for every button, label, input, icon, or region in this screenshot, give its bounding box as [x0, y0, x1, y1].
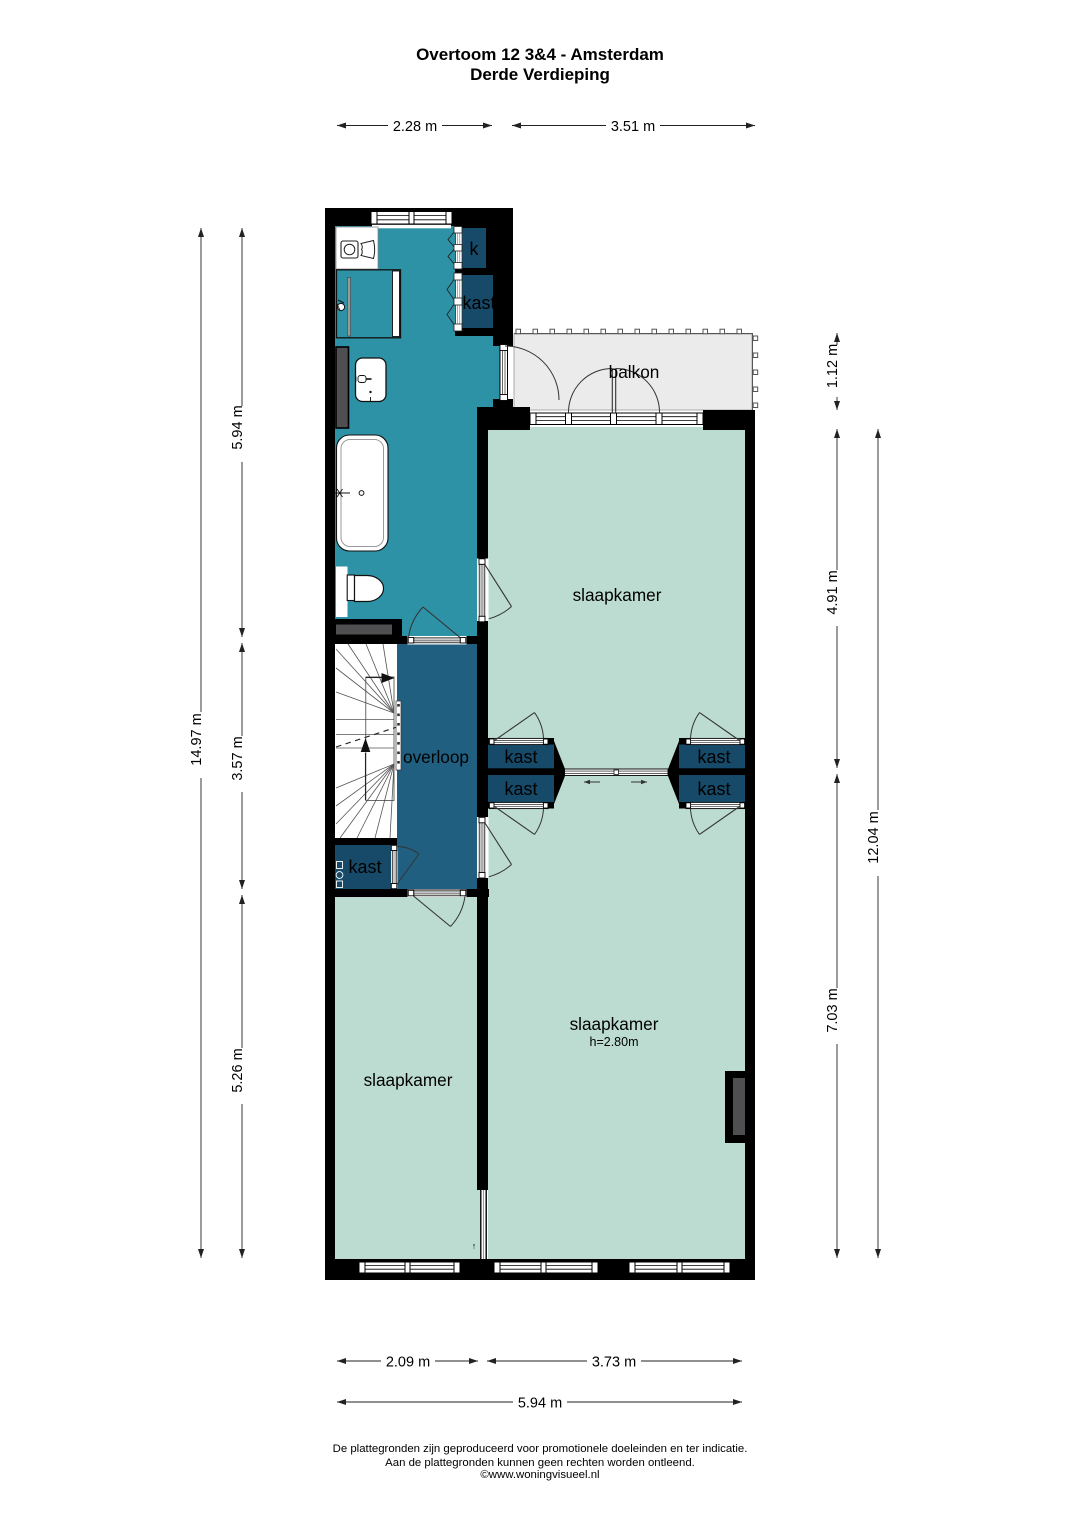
svg-text:7.03 m: 7.03 m — [825, 988, 841, 1032]
svg-text:slaapkamer: slaapkamer — [364, 1070, 453, 1090]
svg-text:k: k — [470, 239, 480, 259]
svg-text:slaapkamer: slaapkamer — [570, 1014, 659, 1034]
svg-text:kast: kast — [697, 779, 730, 799]
svg-text:kast: kast — [462, 293, 495, 313]
svg-text:5.94 m: 5.94 m — [230, 405, 246, 449]
svg-text:5.94 m: 5.94 m — [518, 1396, 562, 1412]
svg-text:kast: kast — [348, 857, 381, 877]
svg-text:Derde Verdieping: Derde Verdieping — [470, 65, 610, 84]
svg-text:3.57 m: 3.57 m — [230, 736, 246, 780]
svg-text:h=2.80m: h=2.80m — [590, 1035, 639, 1049]
svg-text:balkon: balkon — [609, 362, 660, 382]
svg-text:12.04 m: 12.04 m — [866, 811, 882, 863]
svg-text:3.51 m: 3.51 m — [611, 119, 655, 135]
svg-text:1.12 m: 1.12 m — [825, 344, 841, 388]
svg-text:14.97 m: 14.97 m — [189, 713, 205, 765]
svg-text:©www.woningvisueel.nl: ©www.woningvisueel.nl — [480, 1469, 599, 1481]
svg-text:2.28 m: 2.28 m — [393, 119, 437, 135]
svg-text:5.26 m: 5.26 m — [230, 1048, 246, 1092]
svg-text:kast: kast — [504, 747, 537, 767]
svg-text:4.91 m: 4.91 m — [825, 570, 841, 614]
svg-text:3.73 m: 3.73 m — [592, 1355, 636, 1371]
svg-text:Aan de plattegronden kunnen ge: Aan de plattegronden kunnen geen rechten… — [385, 1457, 695, 1469]
svg-text:Overtoom 12 3&4 - Amsterdam: Overtoom 12 3&4 - Amsterdam — [416, 45, 664, 64]
svg-text:overloop: overloop — [403, 747, 469, 767]
svg-text:2.09 m: 2.09 m — [386, 1355, 430, 1371]
svg-text:kast: kast — [504, 779, 537, 799]
svg-text:kast: kast — [697, 747, 730, 767]
svg-text:slaapkamer: slaapkamer — [573, 585, 662, 605]
svg-text:De plattegronden zijn geproduc: De plattegronden zijn geproduceerd voor … — [333, 1443, 748, 1455]
svg-text:↑: ↑ — [472, 1241, 477, 1251]
